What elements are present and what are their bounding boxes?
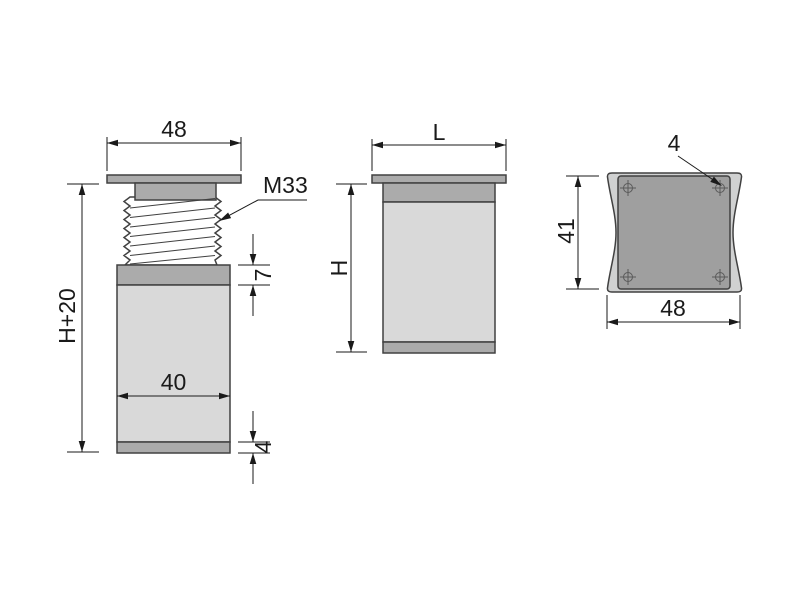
dimension-label-48: 48: [161, 116, 187, 142]
arrowhead: [250, 285, 257, 296]
arrowhead: [348, 341, 355, 352]
side-top-width-dimension: 48: [107, 116, 241, 171]
arrowhead: [230, 140, 241, 147]
dimension-label-41: 41: [553, 218, 579, 244]
front-foot-cap: [383, 342, 495, 353]
dimension-label-7: 7: [250, 269, 276, 282]
arrowhead: [79, 184, 86, 195]
arrowhead: [107, 140, 118, 147]
leader-arrowhead: [219, 213, 231, 222]
technical-drawing-canvas: 48 M33: [0, 0, 800, 600]
arrowhead: [495, 142, 506, 149]
front-collar: [383, 183, 495, 202]
side-foot-cap: [117, 442, 230, 453]
arrowhead: [348, 184, 355, 195]
top-width-dimension: 48: [607, 295, 740, 329]
dimension-label-40: 40: [161, 369, 187, 395]
side-overall-height-dimension: H+20: [54, 184, 99, 452]
side-foot-height-dimension: 4: [238, 411, 276, 484]
dimension-label-l: L: [433, 119, 446, 145]
side-top-plate: [107, 175, 241, 183]
arrowhead: [250, 431, 257, 442]
top-view: 4 41 48: [553, 130, 742, 329]
side-neck: [135, 183, 216, 200]
arrowhead: [250, 453, 257, 464]
front-tube-body: [383, 202, 495, 342]
arrowhead: [575, 278, 582, 289]
hole-label-4: 4: [668, 130, 681, 156]
front-height-dimension: H: [326, 184, 367, 352]
side-collar: [117, 265, 230, 285]
dimension-label-h-plus-20: H+20: [54, 288, 80, 344]
arrowhead: [79, 441, 86, 452]
dimension-label-h: H: [326, 260, 352, 277]
arrowhead: [372, 142, 383, 149]
side-tube-body: [117, 285, 230, 442]
front-view: L H: [326, 119, 506, 353]
side-view: 48 M33: [54, 116, 308, 484]
front-width-dimension: L: [372, 119, 506, 171]
arrowhead: [729, 319, 740, 326]
arrowhead: [250, 254, 257, 265]
front-top-plate: [372, 175, 506, 183]
top-depth-dimension: 41: [553, 176, 599, 289]
dimension-label-48: 48: [660, 295, 686, 321]
side-collar-height-dimension: 7: [238, 234, 276, 316]
arrowhead: [575, 176, 582, 187]
technical-drawing-page: 48 M33: [0, 0, 800, 600]
arrowhead: [607, 319, 618, 326]
thread-label-m33: M33: [263, 172, 308, 198]
dimension-label-4: 4: [250, 440, 276, 453]
top-square-body: [618, 176, 730, 289]
